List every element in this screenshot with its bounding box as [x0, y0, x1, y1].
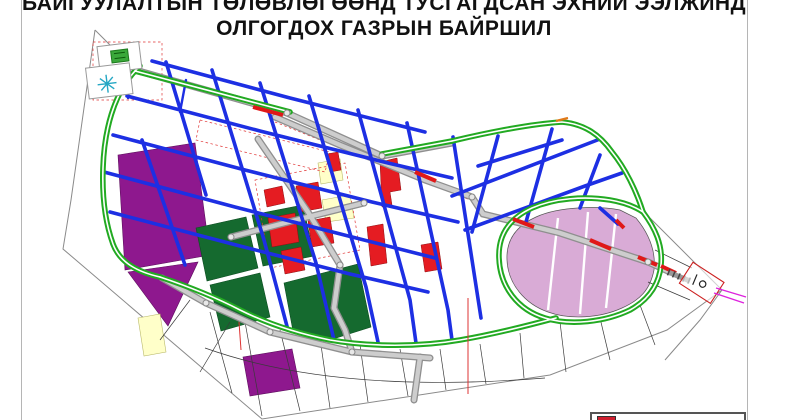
- legend-red-swatch: [597, 416, 616, 420]
- urban-plan-map: [0, 0, 800, 420]
- site-exit: [668, 262, 746, 303]
- plan-sheet: БАЙГУУЛАЛТЫН ТӨЛӨВЛӨГӨӨНД ТУСГАГДСАН ЭХН…: [0, 0, 800, 420]
- legend-box: [590, 412, 746, 420]
- green-building-icon: [111, 49, 129, 63]
- site-exit-plate-icon: [679, 262, 724, 303]
